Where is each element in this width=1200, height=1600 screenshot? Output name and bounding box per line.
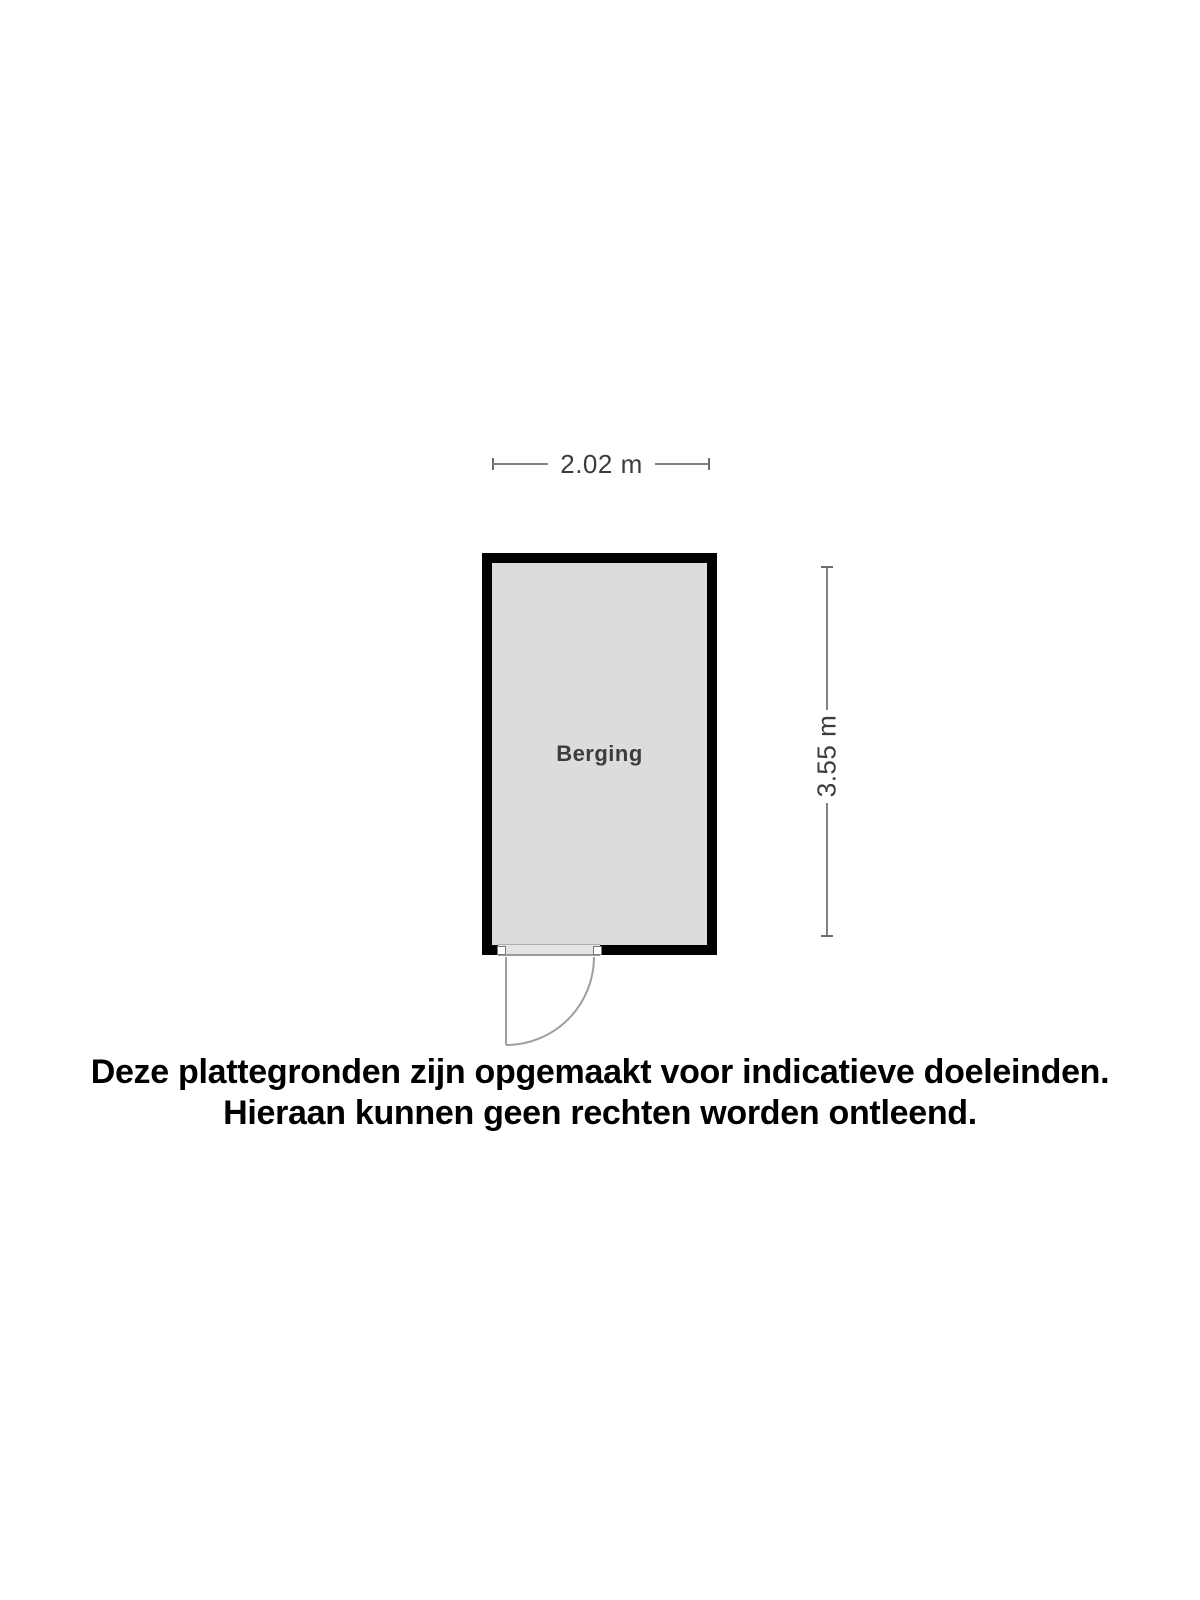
dim-width-label: 2.02 m [560,449,643,480]
dim-width: 2.02 m [493,448,710,480]
dim-height-line-top [826,568,828,710]
dim-height-tick-bottom [821,935,833,937]
room-floor: Berging [492,563,707,945]
door-stop-left [497,946,506,955]
disclaimer: Deze plattegronden zijn opgemaakt voor i… [0,1052,1200,1134]
room-berging: Berging [482,553,717,955]
door-swing-arc [506,957,594,1045]
door-stop-right [593,946,602,955]
floorplan-canvas: 2.02 m Berging 3.55 m Deze plattegronden… [0,0,1200,1600]
dim-width-line-left [493,463,548,465]
disclaimer-line-2: Hieraan kunnen geen rechten worden ontle… [0,1093,1200,1134]
dim-height-label: 3.55 m [812,715,843,798]
room-label: Berging [556,741,643,767]
disclaimer-line-1: Deze plattegronden zijn opgemaakt voor i… [0,1052,1200,1093]
dim-width-tick-right [708,458,710,470]
door-sill [498,944,600,956]
dim-width-line-right [655,463,710,465]
dim-height-line-bottom [826,803,828,935]
